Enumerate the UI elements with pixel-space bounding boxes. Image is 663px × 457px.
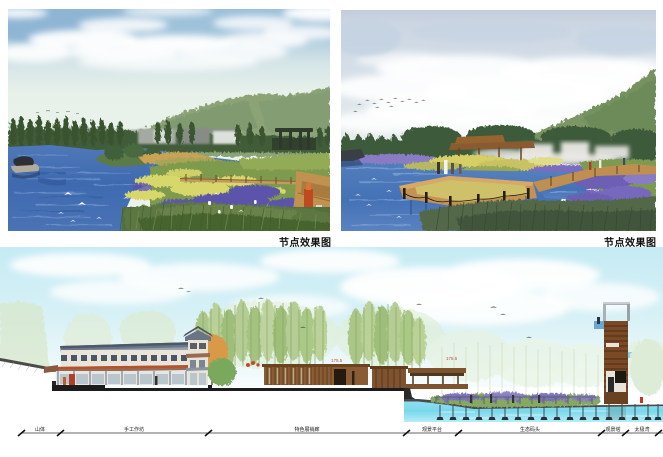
svg-text:生态码头: 生态码头 [520, 426, 540, 433]
svg-text:观景塔: 观景塔 [605, 426, 620, 433]
svg-text:175.5: 175.5 [446, 356, 458, 361]
svg-text:175.5: 175.5 [331, 358, 343, 363]
svg-text:手工作坊: 手工作坊 [124, 426, 144, 433]
svg-text:观景平台: 观景平台 [422, 426, 442, 433]
svg-text:太极湾: 太极湾 [634, 426, 649, 433]
svg-text:山体: 山体 [35, 426, 45, 433]
svg-text:特色展销廊: 特色展销廊 [294, 426, 319, 433]
